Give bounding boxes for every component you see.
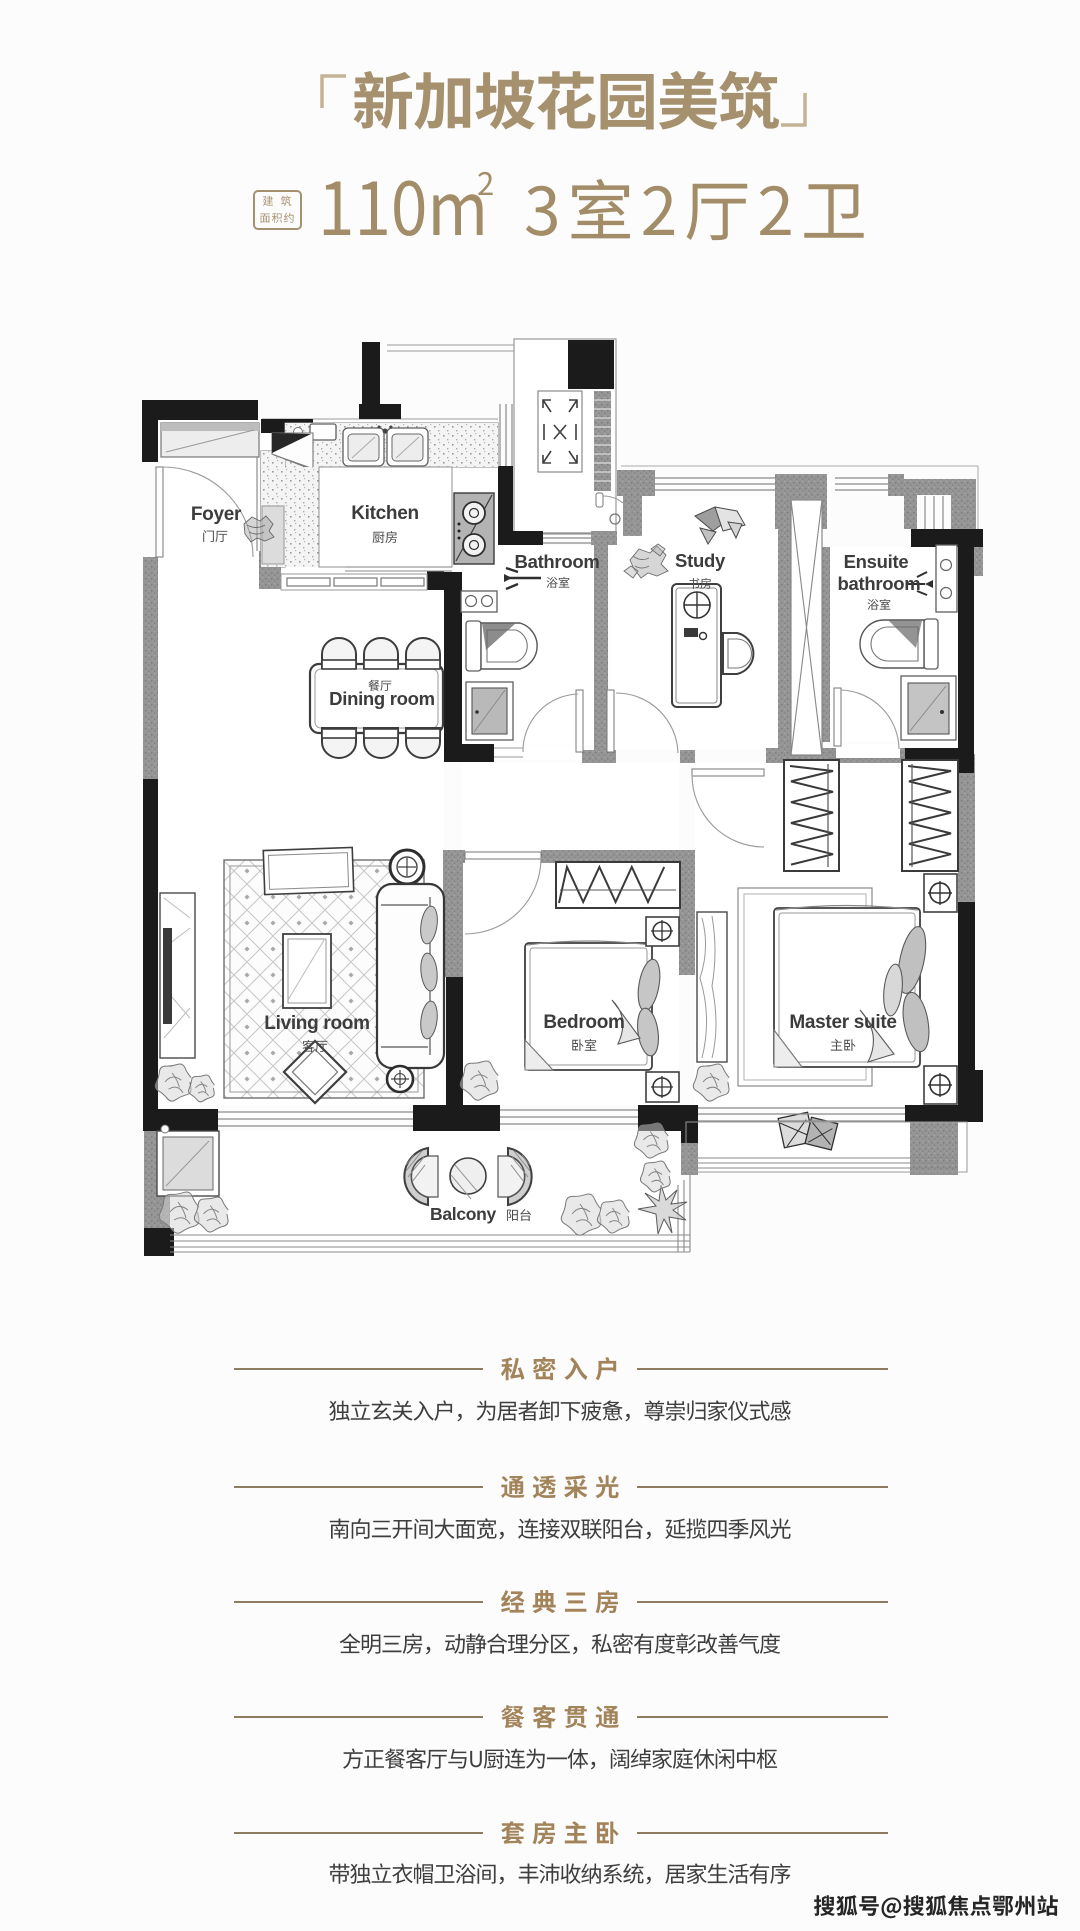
svg-text:Bathroom: Bathroom: [515, 551, 600, 572]
svg-text:bathroom: bathroom: [838, 573, 921, 594]
svg-text:Living room: Living room: [264, 1013, 369, 1034]
svg-text:Study: Study: [675, 550, 726, 571]
svg-text:Kitchen: Kitchen: [351, 503, 419, 524]
svg-text:Dining room: Dining room: [329, 688, 435, 709]
svg-text:Ensuite: Ensuite: [844, 551, 909, 572]
svg-text:Foyer: Foyer: [191, 504, 242, 525]
svg-text:Balcony: Balcony: [430, 1204, 497, 1224]
svg-text:Master suite: Master suite: [789, 1012, 896, 1033]
svg-text:Bedroom: Bedroom: [543, 1012, 624, 1033]
